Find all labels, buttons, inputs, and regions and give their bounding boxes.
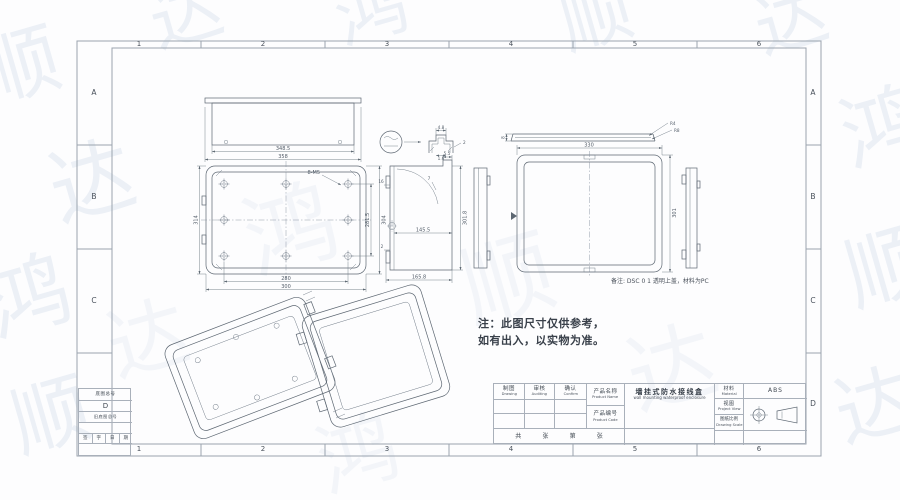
- svg-text:8-M5: 8-M5: [308, 170, 320, 176]
- zone-label: B: [805, 192, 821, 201]
- empty-cell: [624, 428, 714, 445]
- material-text: ABS: [768, 387, 783, 394]
- projection-symbol: [746, 401, 806, 429]
- label-en: Product Name: [592, 396, 618, 400]
- product-name-en: wall mounting waterproof enclosure: [633, 396, 705, 401]
- zone-label: 3: [377, 40, 397, 48]
- corner-table-label: 期: [124, 436, 129, 441]
- svg-text:358: 358: [278, 154, 288, 160]
- zone-label: 2: [253, 445, 273, 453]
- label-cn: 共: [515, 433, 521, 440]
- zone-label: 4: [501, 445, 521, 453]
- signature-cell: 字: [92, 433, 105, 443]
- detail-balloon: [380, 131, 421, 153]
- title-block: 制图 Drawing 审核 Auditing 确认 Confirm 共 张 第 …: [493, 383, 806, 444]
- product-name-value: 墙挂式防水接线盒 wall mounting waterproof enclos…: [624, 384, 714, 428]
- zone-label: 6: [749, 40, 769, 48]
- label-en: Drawing: [501, 393, 516, 397]
- label-en: Project View: [718, 407, 740, 411]
- empty-cell: [524, 399, 554, 413]
- zone-label: 5: [625, 445, 645, 453]
- zone-label: 3: [377, 445, 397, 453]
- zone-label: A: [805, 88, 821, 97]
- view-label: 视图 Project View: [714, 398, 743, 414]
- svg-text:7: 7: [428, 176, 431, 181]
- svg-text:2: 2: [381, 244, 384, 249]
- zone-label: 2: [253, 40, 273, 48]
- title-block-drawing-header: 制图 Drawing: [494, 384, 524, 399]
- label-en: Confirm: [563, 393, 578, 397]
- zone-label: 1: [129, 40, 149, 48]
- title-block-auditing-header: 审核 Auditing: [524, 384, 554, 399]
- drawing-sheet: 顺 达 鸿 顺 达 鸿 顺 达 鸿 顺 达 鸿 顺 达 鸿 达: [0, 0, 900, 500]
- corner-table-row-base-number: 底图总号: [79, 389, 132, 400]
- svg-text:16: 16: [378, 179, 384, 184]
- zone-label: 4: [501, 40, 521, 48]
- empty-cell: [79, 443, 132, 457]
- empty-cell: [79, 422, 132, 433]
- material-value: ABS: [743, 384, 807, 398]
- signature-cell: 日: [105, 433, 119, 443]
- product-code-label: 产品编号 Product Code: [586, 405, 624, 428]
- zone-label: 6: [749, 445, 769, 453]
- svg-text:314: 314: [194, 215, 200, 225]
- corner-table: 底图总号 D 旧底图总号 签 字 日 期: [78, 388, 131, 456]
- scale-label: 图纸比例 Drawing Scale: [714, 414, 743, 430]
- sheet-count-row: 共 张 第 张: [494, 428, 624, 445]
- svg-text:300: 300: [281, 284, 291, 290]
- section-view: 5.5 7 16 2 145.5 165.8 301.8: [378, 151, 468, 283]
- svg-text:145.5: 145.5: [416, 228, 430, 234]
- corner-table-zone-d: D: [79, 400, 132, 411]
- svg-text:304: 304: [382, 215, 388, 225]
- product-name-label: 产品名称 Product Name: [586, 384, 624, 405]
- note-line-1: 注：此图尺寸仅供参考，: [478, 315, 658, 332]
- svg-text:330: 330: [584, 143, 594, 149]
- label-en: Product Code: [593, 418, 618, 422]
- signature-cell: 期: [119, 433, 132, 443]
- title-block-confirm-header: 确认 Confirm: [554, 384, 586, 399]
- empty-cell: [524, 413, 554, 428]
- zone-label: 1: [129, 445, 149, 453]
- svg-text:R4: R4: [670, 121, 676, 126]
- zone-label: D: [103, 402, 108, 410]
- empty-cell: [554, 399, 586, 413]
- lid-profile-view: 8 R4 R8: [501, 121, 680, 141]
- lid-side-view: [682, 168, 700, 268]
- svg-text:2: 2: [463, 140, 466, 145]
- empty-cell: [714, 430, 743, 445]
- reference-note: 注：此图尺寸仅供参考， 如有出入，以实物为准。: [478, 315, 658, 349]
- svg-text:4.8: 4.8: [438, 125, 445, 130]
- zone-label: A: [86, 88, 102, 97]
- corner-table-label: 签: [83, 436, 88, 441]
- svg-text:348.5: 348.5: [276, 146, 290, 152]
- cover-remark: 备注: DSC 0 1 透明上盖，材料为PC: [611, 276, 709, 285]
- zone-label: C: [805, 296, 821, 305]
- corner-table-label: 字: [97, 436, 102, 441]
- corner-table-label: 底图总号: [96, 392, 116, 397]
- svg-text:165.8: 165.8: [412, 275, 426, 281]
- svg-text:8: 8: [501, 136, 506, 139]
- signature-cell: 签: [79, 433, 92, 443]
- svg-text:R8: R8: [674, 128, 680, 133]
- empty-cell: [554, 413, 586, 428]
- projection-symbol-cell: [743, 398, 807, 430]
- zone-label: 5: [625, 40, 645, 48]
- empty-cell: [743, 430, 807, 445]
- label-en: Material: [722, 392, 737, 396]
- side-view: 348.5 358: [205, 98, 361, 162]
- zone-label: C: [86, 296, 102, 305]
- svg-text:301: 301: [672, 208, 678, 218]
- label-cn: 张: [542, 433, 548, 440]
- svg-text:301.8: 301.8: [463, 211, 469, 225]
- svg-text:5.5: 5.5: [444, 151, 451, 156]
- corner-table-row-old-number: 旧底图总号: [79, 411, 132, 422]
- material-label: 材料 Material: [714, 384, 743, 398]
- label-cn: 第: [570, 433, 576, 440]
- svg-text:281.5: 281.5: [365, 213, 371, 227]
- svg-text:280: 280: [281, 276, 291, 282]
- label-cn: 张: [597, 433, 603, 440]
- label-en: Auditing: [532, 393, 547, 397]
- empty-cell: [494, 413, 524, 428]
- empty-cell: [494, 399, 524, 413]
- front-view: 8-M5 314 281.5 304 280 300: [194, 161, 388, 292]
- label-en: Drawing Scale: [716, 423, 742, 427]
- corner-table-label: 旧底图总号: [94, 414, 117, 419]
- lid-top-view: 330 301: [511, 143, 678, 277]
- note-line-2: 如有出入，以实物为准。: [478, 332, 658, 349]
- corner-table-label: 日: [110, 436, 115, 441]
- profile-view: [474, 168, 490, 268]
- zone-label: B: [86, 192, 102, 201]
- zone-label: D: [805, 399, 821, 408]
- isometric-view: [162, 282, 452, 441]
